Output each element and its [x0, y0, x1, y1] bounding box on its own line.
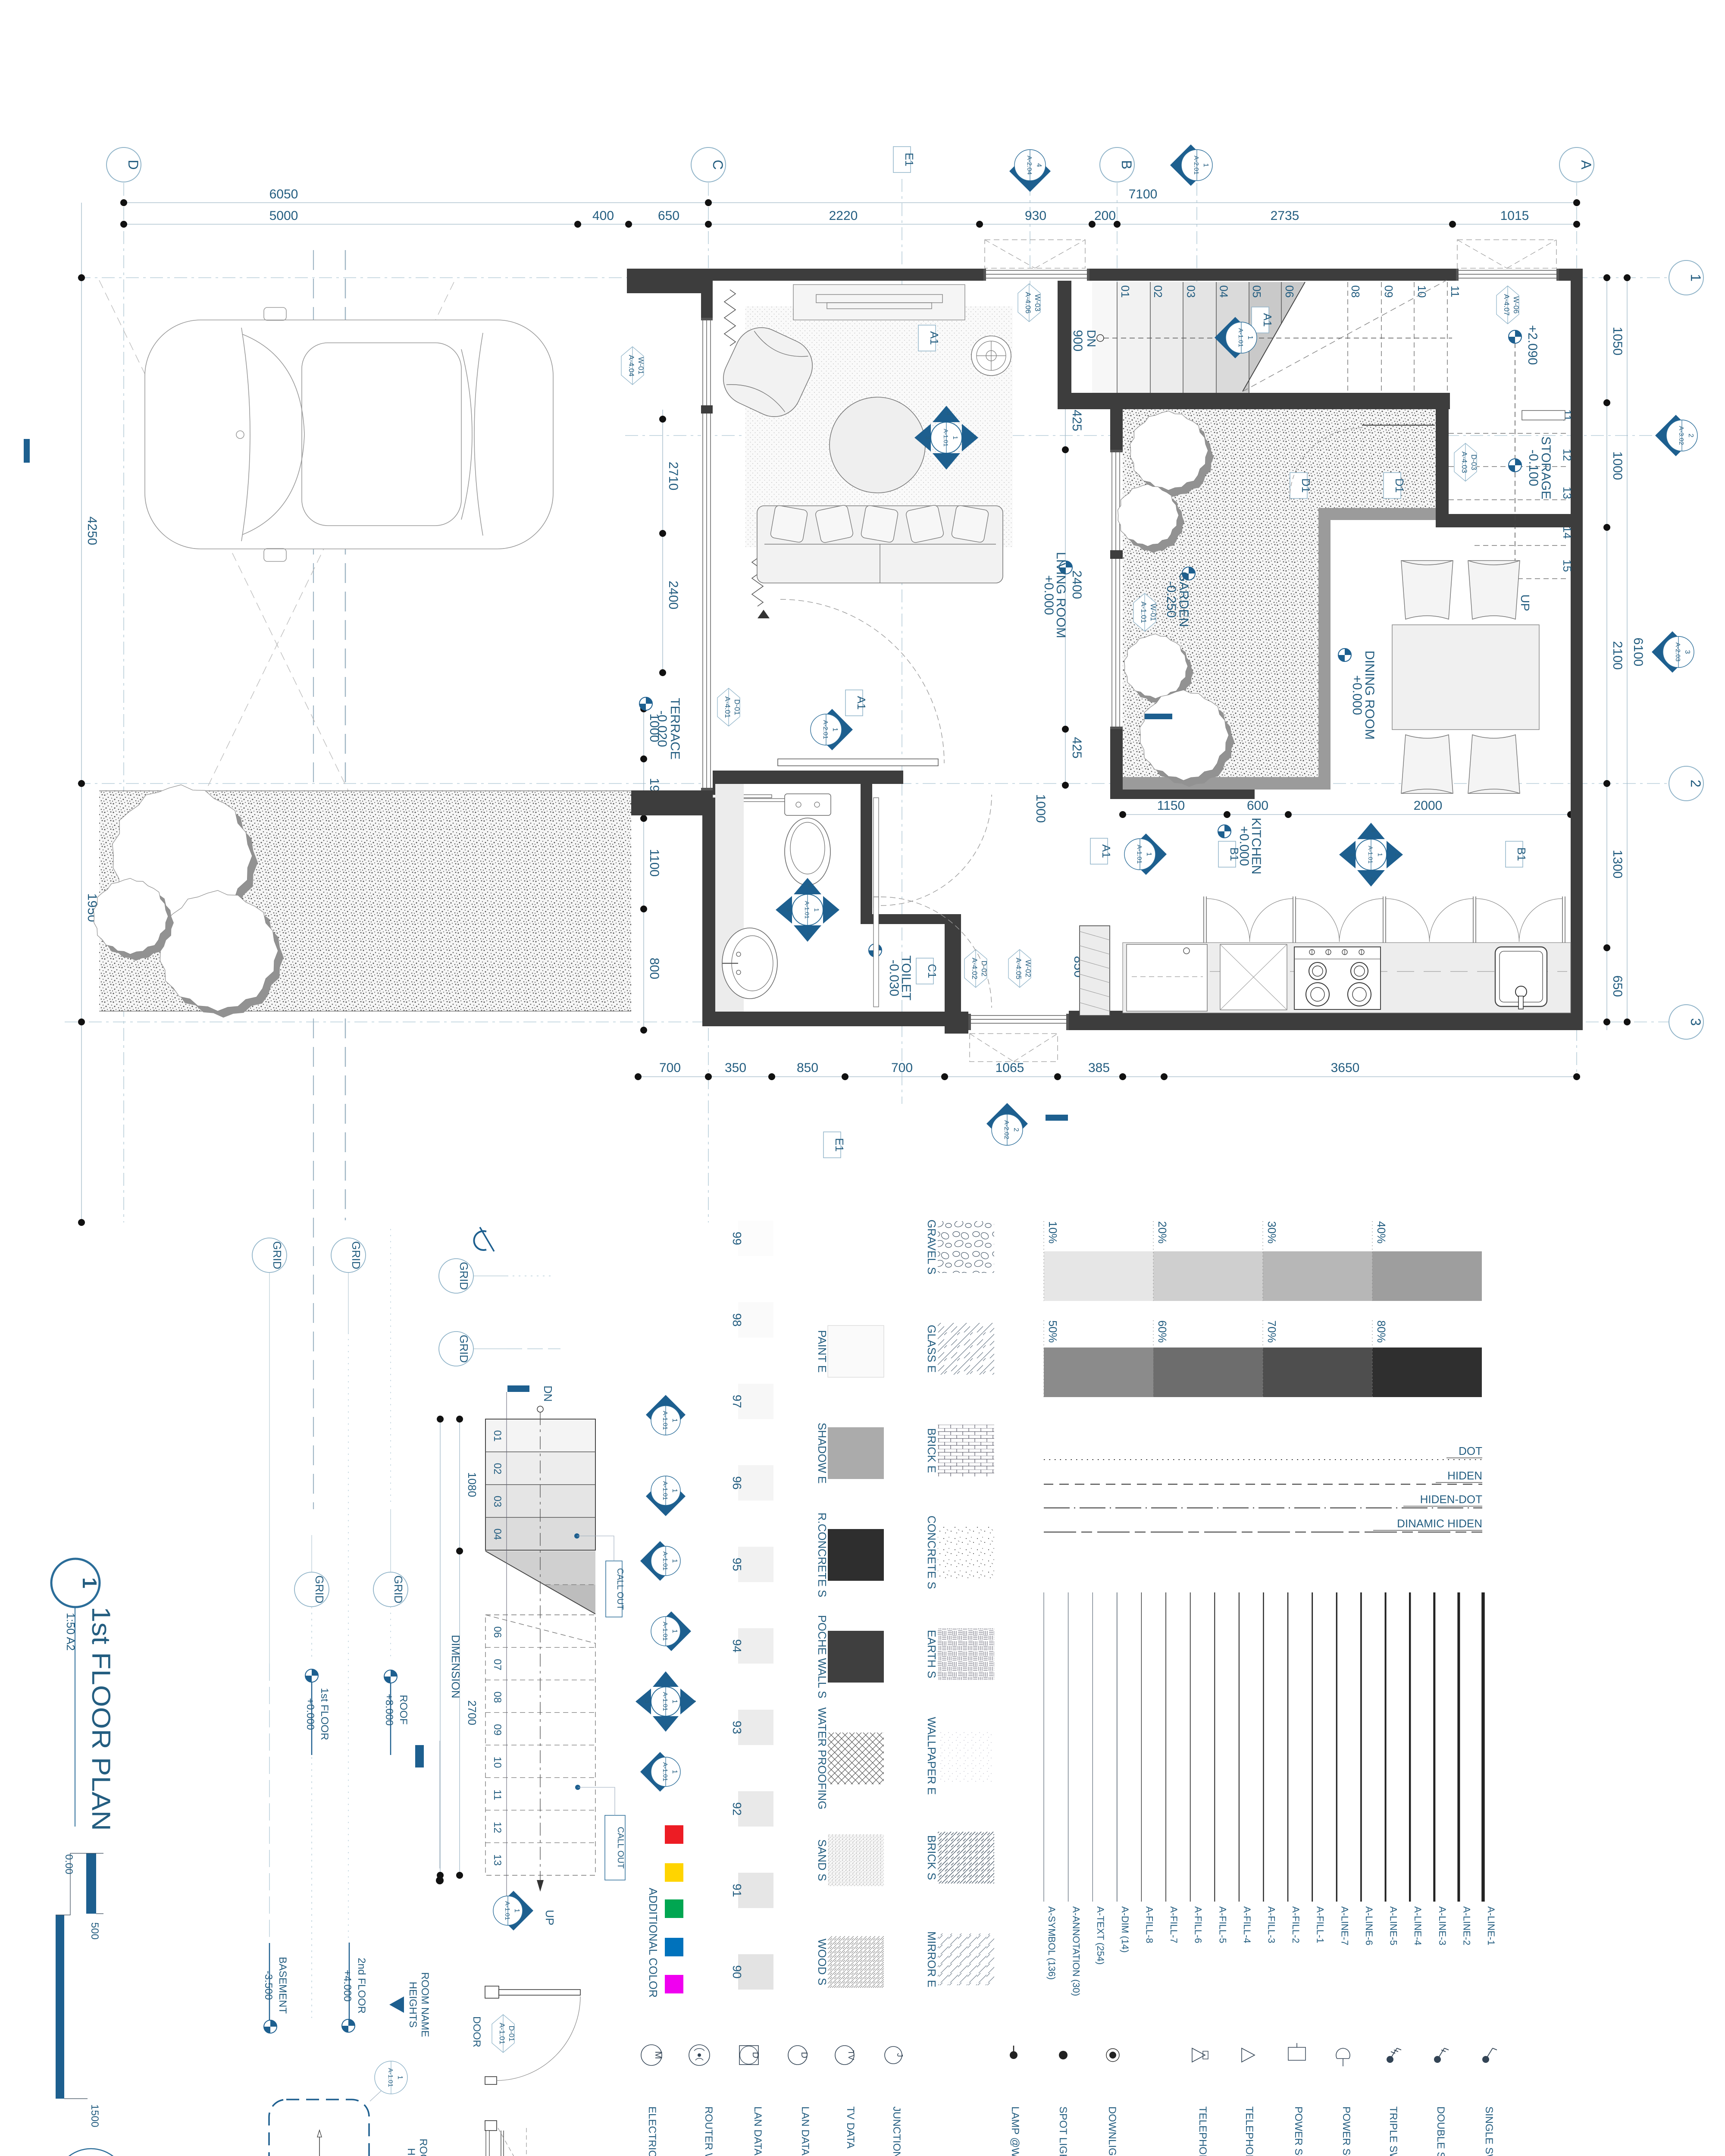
- svg-text:DOUBLE SWITCH: DOUBLE SWITCH: [1435, 2106, 1446, 2156]
- svg-text:GRID: GRID: [350, 1241, 363, 1269]
- svg-text:A-1.01: A-1.01: [504, 1901, 511, 1920]
- svg-text:DOOR: DOOR: [471, 2016, 482, 2047]
- svg-text:W-01: W-01: [1149, 604, 1157, 621]
- svg-text:TV: TV: [847, 2050, 855, 2060]
- svg-text:04: 04: [1218, 285, 1230, 298]
- svg-text:3650: 3650: [1331, 1061, 1360, 1075]
- svg-text:2: 2: [1688, 780, 1703, 787]
- svg-text:D-01: D-01: [733, 699, 741, 715]
- svg-text:2400: 2400: [666, 581, 680, 610]
- svg-text:D1: D1: [1393, 478, 1406, 492]
- svg-text:DIMENSION: DIMENSION: [449, 1635, 462, 1698]
- svg-text:850: 850: [797, 1061, 818, 1075]
- svg-text:2400: 2400: [1070, 570, 1084, 599]
- svg-text:BASEMENT: BASEMENT: [277, 1957, 288, 2014]
- svg-text:POWER SOCKET @FLOOR: POWER SOCKET @FLOOR: [1293, 2106, 1304, 2156]
- svg-text:10: 10: [1415, 285, 1428, 298]
- svg-text:JUNCTION BOX: JUNCTION BOX: [891, 2106, 902, 2156]
- svg-text:10%: 10%: [1046, 1221, 1059, 1244]
- svg-text:1150: 1150: [1157, 799, 1185, 813]
- svg-text:09: 09: [492, 1724, 503, 1736]
- svg-text:C: C: [710, 160, 726, 169]
- svg-text:02: 02: [1152, 285, 1165, 298]
- svg-text:SPOT LIGHT: SPOT LIGHT: [1057, 2106, 1069, 2156]
- svg-text:11: 11: [492, 1789, 503, 1800]
- svg-text:A-2.04: A-2.04: [1026, 156, 1033, 175]
- svg-text:1st FLOOR PLAN: 1st FLOOR PLAN: [87, 1607, 116, 1831]
- svg-text:HEIGHTS: HEIGHTS: [407, 1982, 419, 2028]
- svg-text:08: 08: [1349, 285, 1362, 298]
- svg-text:50%: 50%: [1046, 1320, 1059, 1343]
- svg-text:3: 3: [924, 436, 931, 439]
- svg-text:20%: 20%: [1156, 1221, 1169, 1244]
- svg-text:A-1.01: A-1.01: [661, 1622, 669, 1641]
- svg-text:CONCRETE S: CONCRETE S: [925, 1516, 938, 1589]
- svg-text:HEIGHTS: HEIGHTS: [405, 2148, 417, 2156]
- svg-text:2220: 2220: [829, 209, 858, 223]
- svg-text:1: 1: [1145, 852, 1152, 856]
- svg-text:GRID: GRID: [457, 1262, 470, 1290]
- svg-text:1: 1: [671, 1419, 678, 1423]
- svg-text:1: 1: [78, 1577, 101, 1589]
- svg-text:70%: 70%: [1265, 1320, 1278, 1343]
- svg-text:DINAMIC HIDEN: DINAMIC HIDEN: [1397, 1517, 1482, 1530]
- svg-text:A-4.03: A-4.03: [1460, 451, 1468, 473]
- svg-text:GRID: GRID: [457, 1335, 470, 1363]
- svg-text:96: 96: [730, 1476, 744, 1489]
- svg-text:90: 90: [730, 1965, 744, 1978]
- svg-text:97: 97: [730, 1395, 744, 1408]
- svg-text:A-1.01: A-1.01: [661, 1692, 669, 1711]
- svg-text:A-LINE-5: A-LINE-5: [1388, 1906, 1399, 1945]
- svg-text:13: 13: [1561, 487, 1574, 499]
- svg-text:TERRACE: TERRACE: [668, 698, 682, 759]
- svg-text:A1: A1: [1100, 844, 1113, 858]
- svg-text:WATER PROOFING: WATER PROOFING: [816, 1708, 829, 1810]
- svg-text:A-2.02: A-2.02: [1003, 1120, 1010, 1139]
- svg-text:A-3.02: A-3.02: [1678, 426, 1685, 445]
- svg-text:DOWNLIGHT: DOWNLIGHT: [1106, 2106, 1118, 2156]
- svg-text:A-1.01: A-1.01: [661, 1551, 669, 1570]
- svg-text:7100: 7100: [1129, 187, 1158, 201]
- svg-text:D: D: [125, 160, 141, 169]
- svg-text:1: 1: [671, 1489, 678, 1493]
- svg-text:SHADOW E: SHADOW E: [816, 1423, 829, 1484]
- svg-text:ROOM NAME: ROOM NAME: [419, 1972, 431, 2037]
- svg-text:2100: 2100: [1610, 641, 1625, 670]
- svg-text:2735: 2735: [1271, 209, 1299, 223]
- svg-text:60%: 60%: [1156, 1320, 1169, 1343]
- svg-text:98: 98: [730, 1313, 744, 1326]
- svg-text:4: 4: [945, 412, 952, 415]
- svg-text:C1: C1: [926, 964, 939, 978]
- svg-text:425: 425: [1070, 410, 1084, 431]
- svg-text:ROOF: ROOF: [398, 1695, 409, 1724]
- svg-text:-0.030: -0.030: [887, 959, 901, 996]
- svg-text:3: 3: [1688, 1018, 1703, 1026]
- svg-text:3: 3: [643, 1700, 651, 1703]
- svg-text:A-FILL-8: A-FILL-8: [1144, 1906, 1155, 1943]
- svg-text:GRAVEL S: GRAVEL S: [925, 1219, 938, 1274]
- svg-text:A-1.01: A-1.01: [804, 901, 811, 918]
- svg-text:GLASS E: GLASS E: [925, 1325, 938, 1373]
- svg-text:1: 1: [969, 436, 976, 439]
- svg-text:700: 700: [659, 1061, 681, 1075]
- svg-text:12: 12: [492, 1822, 503, 1833]
- svg-text:2: 2: [1369, 877, 1377, 881]
- svg-text:08: 08: [492, 1692, 503, 1703]
- svg-text:650: 650: [1610, 975, 1625, 997]
- svg-text:GRID: GRID: [392, 1576, 405, 1604]
- svg-text:ROUTER WI-FI: ROUTER WI-FI: [703, 2106, 714, 2156]
- svg-text:30%: 30%: [1265, 1221, 1278, 1244]
- svg-text:1: 1: [671, 1559, 678, 1563]
- svg-text:425: 425: [1070, 737, 1084, 758]
- svg-text:+4.000: +4.000: [341, 1970, 353, 2002]
- svg-text:BRICK E: BRICK E: [925, 1428, 938, 1473]
- svg-text:A-4.05: A-4.05: [1014, 958, 1023, 979]
- svg-text:D-03: D-03: [1470, 454, 1478, 470]
- svg-text:+8.000: +8.000: [383, 1694, 395, 1726]
- svg-text:1: 1: [671, 1700, 678, 1704]
- svg-text:+0.000: +0.000: [1042, 575, 1056, 615]
- svg-text:04: 04: [492, 1529, 503, 1540]
- svg-text:A-1.01: A-1.01: [1136, 845, 1143, 864]
- svg-text:650: 650: [658, 209, 679, 223]
- svg-text:1: 1: [831, 728, 839, 732]
- svg-text:14: 14: [1561, 526, 1574, 539]
- svg-text:ELECTRIC METERS: ELECTRIC METERS: [646, 2106, 658, 2156]
- svg-text:1080: 1080: [466, 1472, 479, 1497]
- svg-text:01: 01: [492, 1430, 503, 1442]
- svg-text:A-LINE-1: A-LINE-1: [1486, 1906, 1496, 1945]
- svg-text:WALLPAPER E: WALLPAPER E: [925, 1717, 938, 1795]
- svg-text:2: 2: [1012, 1128, 1020, 1132]
- svg-text:5000: 5000: [269, 209, 298, 223]
- svg-text:D-01: D-01: [507, 2026, 516, 2042]
- svg-text:1065: 1065: [996, 1061, 1024, 1075]
- svg-text:CALL OUT: CALL OUT: [615, 1568, 625, 1610]
- svg-text:TV DATA: TV DATA: [845, 2106, 856, 2149]
- svg-text:A-4.07: A-4.07: [1503, 294, 1511, 316]
- svg-text:A-4.06: A-4.06: [1024, 292, 1032, 313]
- svg-text:+0.000: +0.000: [304, 1698, 316, 1730]
- svg-text:3: 3: [1349, 853, 1356, 856]
- svg-text:A-LINE-3: A-LINE-3: [1437, 1906, 1448, 1945]
- svg-text:B: B: [1119, 160, 1134, 169]
- svg-text:A-LINE-6: A-LINE-6: [1364, 1906, 1374, 1945]
- svg-text:1100: 1100: [647, 849, 661, 877]
- svg-text:92: 92: [730, 1802, 744, 1815]
- svg-text:ADDITIONAL COLOR: ADDITIONAL COLOR: [647, 1888, 660, 1998]
- svg-text:TELEPHONE: TELEPHONE: [1243, 2106, 1255, 2156]
- svg-text:2: 2: [806, 932, 813, 936]
- svg-text:900: 900: [1071, 330, 1085, 351]
- svg-text:A-LINE-4: A-LINE-4: [1412, 1906, 1423, 1945]
- svg-text:99: 99: [730, 1232, 744, 1245]
- svg-text:A-1.01: A-1.01: [942, 429, 949, 446]
- svg-text:A-FILL-1: A-FILL-1: [1315, 1906, 1326, 1943]
- svg-text:1: 1: [513, 1909, 520, 1913]
- svg-text:1: 1: [690, 1700, 697, 1703]
- svg-text:A-ANNOTATION (30): A-ANNOTATION (30): [1071, 1906, 1082, 1996]
- svg-text:SINGLE SWITCH: SINGLE SWITCH: [1483, 2106, 1495, 2156]
- svg-text:4: 4: [1369, 829, 1377, 832]
- svg-text:2700: 2700: [466, 1700, 479, 1725]
- svg-text:1: 1: [396, 2076, 404, 2080]
- svg-text:DN: DN: [1085, 330, 1098, 347]
- svg-text:+2.090: +2.090: [1525, 325, 1540, 365]
- svg-text:600: 600: [1247, 799, 1268, 813]
- svg-text:POCHE WALL S: POCHE WALL S: [816, 1615, 829, 1698]
- svg-text:A: A: [1578, 160, 1594, 169]
- svg-text:BRICK S: BRICK S: [925, 1835, 938, 1880]
- svg-text:11: 11: [1449, 286, 1462, 298]
- svg-text:15: 15: [1561, 560, 1574, 572]
- svg-text:WOOD S: WOOD S: [816, 1939, 829, 1985]
- svg-text:A1: A1: [855, 696, 868, 710]
- svg-text:1st FLOOR: 1st FLOOR: [319, 1688, 330, 1740]
- svg-text:1: 1: [813, 908, 820, 912]
- svg-text:06: 06: [1283, 285, 1296, 298]
- svg-text:E1: E1: [903, 153, 916, 166]
- svg-text:1: 1: [671, 1770, 678, 1774]
- svg-text:HIDEN-DOT: HIDEN-DOT: [1420, 1493, 1483, 1506]
- svg-text:TELEPHONE @FLOOR: TELEPHONE @FLOOR: [1197, 2106, 1208, 2156]
- svg-text:385: 385: [1088, 1061, 1110, 1075]
- svg-text:POWER SOCKET: POWER SOCKET: [1340, 2106, 1352, 2156]
- svg-text:MIRROR E: MIRROR E: [925, 1931, 938, 1987]
- svg-text:1: 1: [1393, 853, 1401, 856]
- svg-text:1015: 1015: [1500, 209, 1529, 223]
- svg-text:05: 05: [1250, 285, 1263, 298]
- svg-text:A-FILL-6: A-FILL-6: [1193, 1906, 1204, 1943]
- svg-text:-0.020: -0.020: [655, 710, 669, 747]
- svg-text:01: 01: [1119, 285, 1132, 298]
- svg-text:A1: A1: [928, 331, 941, 345]
- svg-text:4: 4: [1035, 163, 1043, 167]
- svg-text:-3.500: -3.500: [263, 1971, 274, 2000]
- svg-text:4: 4: [806, 884, 813, 887]
- svg-text:D: D: [799, 2052, 809, 2058]
- svg-text:D-02: D-02: [980, 961, 988, 977]
- svg-text:W-03: W-03: [1033, 294, 1042, 311]
- svg-text:D: D: [751, 2052, 760, 2058]
- svg-text:A-2.01: A-2.01: [1193, 156, 1200, 175]
- svg-text:2000: 2000: [1414, 799, 1443, 813]
- svg-text:10: 10: [492, 1757, 503, 1768]
- svg-text:91: 91: [730, 1883, 744, 1897]
- svg-text:A-2.03: A-2.03: [1674, 642, 1681, 661]
- svg-text:PAINT E: PAINT E: [816, 1330, 829, 1373]
- svg-text:1: 1: [671, 1630, 678, 1633]
- svg-text:J: J: [895, 2053, 904, 2057]
- svg-text:1050: 1050: [1610, 327, 1625, 356]
- svg-text:1500: 1500: [89, 2104, 100, 2127]
- svg-text:1000: 1000: [1033, 794, 1048, 823]
- svg-text:R.CONCRETE S: R.CONCRETE S: [816, 1513, 829, 1597]
- svg-text:2: 2: [664, 1724, 671, 1727]
- svg-text:1: 1: [1246, 336, 1254, 340]
- svg-text:M: M: [653, 2051, 664, 2059]
- svg-text:09: 09: [1382, 285, 1395, 298]
- svg-text:3: 3: [1684, 650, 1691, 654]
- svg-text:TRIPLE SWITCH: TRIPLE SWITCH: [1387, 2106, 1399, 2156]
- svg-text:A-LINE-7: A-LINE-7: [1339, 1906, 1350, 1945]
- svg-text:1: 1: [830, 908, 837, 912]
- svg-text:GRID: GRID: [271, 1241, 284, 1269]
- svg-text:A-FILL-3: A-FILL-3: [1266, 1906, 1277, 1943]
- svg-text:A-1.01: A-1.01: [387, 2068, 394, 2087]
- svg-text:A-TEXT (254): A-TEXT (254): [1095, 1906, 1106, 1965]
- svg-text:03: 03: [492, 1496, 503, 1507]
- svg-text:200: 200: [1094, 209, 1116, 223]
- svg-text:80%: 80%: [1375, 1320, 1388, 1343]
- svg-text:ROOM NAME: ROOM NAME: [417, 2139, 429, 2156]
- svg-text:02: 02: [492, 1463, 503, 1475]
- svg-text:A-1.01: A-1.01: [661, 1762, 669, 1781]
- svg-text:6100: 6100: [1631, 638, 1645, 667]
- svg-text:800: 800: [647, 958, 661, 979]
- svg-text:2: 2: [1687, 434, 1694, 438]
- svg-text:6050: 6050: [269, 187, 298, 201]
- svg-text:B1: B1: [1515, 847, 1528, 861]
- svg-text:0.00: 0.00: [63, 1854, 75, 1874]
- svg-text:4: 4: [664, 1676, 671, 1679]
- svg-text:LAN DATA @FLOOR: LAN DATA @FLOOR: [752, 2106, 764, 2156]
- svg-text:1: 1: [1376, 853, 1384, 856]
- svg-text:+0.000: +0.000: [1350, 675, 1364, 715]
- svg-text:A-1.01: A-1.01: [661, 1481, 669, 1500]
- svg-text:HIDEN: HIDEN: [1447, 1469, 1482, 1482]
- svg-text:A-FILL-4: A-FILL-4: [1242, 1906, 1252, 1943]
- svg-text:2710: 2710: [666, 462, 680, 491]
- svg-text:94: 94: [730, 1639, 744, 1652]
- svg-text:1: 1: [1688, 274, 1703, 282]
- svg-text:A-1.01: A-1.01: [1140, 602, 1148, 623]
- svg-text:40%: 40%: [1375, 1221, 1388, 1244]
- svg-text:A-4.04: A-4.04: [627, 355, 636, 376]
- svg-text:07: 07: [492, 1659, 503, 1670]
- svg-text:B1: B1: [1228, 847, 1241, 861]
- svg-text:EARTH S: EARTH S: [925, 1630, 938, 1678]
- svg-text:1: 1: [952, 436, 959, 439]
- svg-text:A-DIM (14): A-DIM (14): [1120, 1906, 1130, 1953]
- svg-text:A-FILL-5: A-FILL-5: [1217, 1906, 1228, 1943]
- svg-text:12: 12: [1561, 449, 1574, 461]
- svg-text:A-4.01: A-4.01: [723, 696, 732, 718]
- svg-text:03: 03: [1184, 285, 1197, 298]
- svg-text:A1: A1: [1261, 313, 1274, 327]
- svg-text:GRID: GRID: [313, 1576, 326, 1604]
- svg-text:06: 06: [492, 1626, 503, 1638]
- svg-text:2nd FLOOR: 2nd FLOOR: [356, 1958, 367, 2013]
- svg-text:D1: D1: [1299, 478, 1312, 492]
- svg-text:95: 95: [730, 1557, 744, 1571]
- svg-text:93: 93: [730, 1720, 744, 1734]
- svg-text:A-LINE-2: A-LINE-2: [1461, 1906, 1472, 1945]
- svg-text:930: 930: [1025, 209, 1046, 223]
- svg-text:13: 13: [492, 1854, 503, 1866]
- svg-text:400: 400: [592, 209, 614, 223]
- svg-text:A-1.01: A-1.01: [498, 2023, 506, 2044]
- svg-text:4250: 4250: [85, 517, 99, 545]
- svg-text:CALL OUT: CALL OUT: [616, 1827, 625, 1868]
- svg-text:1: 1: [1202, 163, 1209, 167]
- svg-text:UP: UP: [1518, 595, 1532, 611]
- svg-text:W-06: W-06: [1512, 296, 1520, 313]
- svg-text:350: 350: [725, 1061, 746, 1075]
- svg-text:1000: 1000: [1610, 451, 1625, 480]
- svg-text:A-1.01: A-1.01: [1237, 328, 1244, 347]
- svg-text:700: 700: [891, 1061, 913, 1075]
- svg-text:A-1.01: A-1.01: [661, 1411, 669, 1430]
- svg-text:2: 2: [945, 460, 952, 464]
- svg-text:DN: DN: [542, 1385, 554, 1402]
- svg-text:A-1.01: A-1.01: [1367, 846, 1374, 863]
- svg-text:-0.250: -0.250: [1164, 581, 1178, 617]
- svg-text:DOT: DOT: [1459, 1445, 1482, 1457]
- svg-text:SAND S: SAND S: [816, 1839, 829, 1881]
- svg-text:A-FILL-7: A-FILL-7: [1168, 1906, 1179, 1943]
- svg-text:W-02: W-02: [1024, 960, 1032, 977]
- svg-text:A-4.02: A-4.02: [971, 958, 979, 979]
- svg-text:500: 500: [89, 1922, 100, 1940]
- svg-text:A-SYMBOL (136): A-SYMBOL (136): [1046, 1906, 1057, 1980]
- svg-text:1300: 1300: [1610, 850, 1625, 879]
- svg-text:LAN DATA: LAN DATA: [799, 2106, 811, 2156]
- svg-text:-0.100: -0.100: [1526, 449, 1540, 486]
- svg-text:E1: E1: [833, 1138, 846, 1152]
- svg-text:LAMP @WALL: LAMP @WALL: [1009, 2106, 1021, 2156]
- svg-text:A-2.01: A-2.01: [822, 720, 829, 739]
- svg-text:3: 3: [785, 908, 792, 912]
- svg-text:UP: UP: [543, 1910, 556, 1925]
- svg-text:A-FILL-2: A-FILL-2: [1290, 1906, 1301, 1943]
- svg-text:W-01: W-01: [637, 357, 645, 374]
